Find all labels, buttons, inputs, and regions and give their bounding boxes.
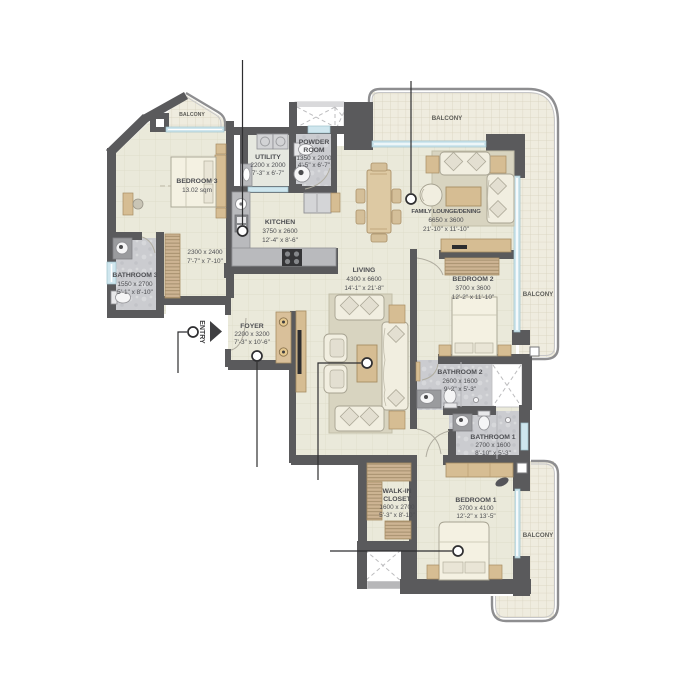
svg-text:BALCONY: BALCONY	[179, 112, 205, 118]
svg-text:BEDROOM 1: BEDROOM 1	[455, 497, 496, 504]
svg-text:12'-2" x 11'-10": 12'-2" x 11'-10"	[452, 294, 494, 301]
svg-text:14'-1" x 21'-8": 14'-1" x 21'-8"	[344, 285, 383, 292]
svg-text:6650 x 3600: 6650 x 3600	[428, 217, 464, 224]
svg-text:POWDER: POWDER	[299, 139, 330, 146]
svg-text:2700 x 1600: 2700 x 1600	[475, 442, 511, 449]
svg-text:LIVING: LIVING	[353, 267, 376, 274]
svg-text:BATHROOM 2: BATHROOM 2	[437, 369, 482, 376]
svg-text:12'-2" x 13'-5": 12'-2" x 13'-5"	[456, 513, 495, 520]
svg-text:ENTRY: ENTRY	[198, 320, 205, 344]
svg-text:3700 x 4100: 3700 x 4100	[458, 505, 494, 512]
svg-text:2200 x 3200: 2200 x 3200	[234, 331, 270, 338]
svg-text:BEDROOM 2: BEDROOM 2	[452, 276, 493, 283]
svg-text:5'-3" x 8'-10": 5'-3" x 8'-10"	[379, 512, 415, 519]
svg-text:4'-5" x 6'-7": 4'-5" x 6'-7"	[298, 162, 330, 169]
svg-text:WALK-IN: WALK-IN	[382, 488, 411, 495]
svg-text:3700 x 3600: 3700 x 3600	[455, 285, 491, 292]
svg-text:BATHROOM 3: BATHROOM 3	[112, 272, 157, 279]
svg-text:BALCONY: BALCONY	[432, 115, 463, 122]
svg-text:2300 x 2400: 2300 x 2400	[187, 249, 223, 256]
svg-text:12'-4" x 8'-6": 12'-4" x 8'-6"	[262, 237, 298, 244]
svg-text:1600 x 2700: 1600 x 2700	[379, 504, 415, 511]
svg-text:BALCONY: BALCONY	[523, 291, 554, 298]
svg-text:FOYER: FOYER	[240, 323, 264, 330]
svg-text:5'-1" x 8'-10": 5'-1" x 8'-10"	[117, 289, 153, 296]
svg-text:21'-10" x 11'-10": 21'-10" x 11'-10"	[423, 226, 469, 233]
svg-text:FAMILY LOUNGE/DENING: FAMILY LOUNGE/DENING	[411, 209, 481, 215]
svg-text:3750 x 2600: 3750 x 2600	[262, 228, 298, 235]
svg-text:2600 x 1600: 2600 x 1600	[442, 378, 478, 385]
svg-text:4300 x 6600: 4300 x 6600	[346, 276, 382, 283]
svg-text:8'-10" x 5'-3": 8'-10" x 5'-3"	[475, 450, 511, 457]
svg-text:BEDROOM 3: BEDROOM 3	[176, 178, 217, 185]
svg-text:1550 x 2700: 1550 x 2700	[117, 281, 153, 288]
svg-text:BALCONY: BALCONY	[523, 532, 554, 539]
svg-text:13.02 sqm: 13.02 sqm	[182, 187, 212, 194]
svg-text:CLOSET: CLOSET	[383, 496, 411, 503]
svg-text:BATHROOM 1: BATHROOM 1	[470, 434, 515, 441]
svg-text:KITCHEN: KITCHEN	[265, 219, 295, 226]
svg-text:7'-3" x 10'-6": 7'-3" x 10'-6"	[234, 339, 270, 346]
svg-text:7'-7" x 7'-10": 7'-7" x 7'-10"	[187, 258, 223, 265]
svg-text:ROOM: ROOM	[303, 147, 324, 154]
svg-text:9'-2" x 5'-3": 9'-2" x 5'-3"	[444, 386, 476, 393]
svg-text:7'-3" x 6'-7": 7'-3" x 6'-7"	[252, 170, 284, 177]
svg-text:UTILITY: UTILITY	[255, 154, 281, 161]
svg-text:1350 x 2000: 1350 x 2000	[296, 155, 332, 162]
svg-text:2200 x 2000: 2200 x 2000	[250, 162, 286, 169]
